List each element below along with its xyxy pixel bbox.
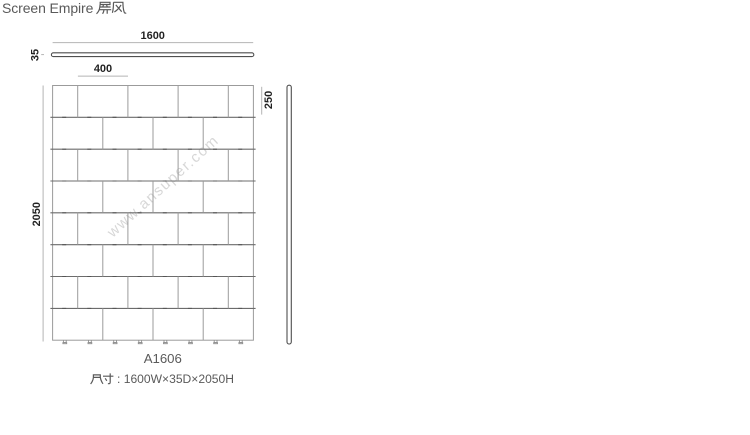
svg-text:Screen Empire: Screen Empire [2,0,94,16]
svg-text:: 1600W×35D×2050H: : 1600W×35D×2050H [117,372,234,386]
svg-text:2050: 2050 [31,202,43,226]
svg-text:1600: 1600 [140,30,164,42]
svg-text:400: 400 [94,63,112,75]
svg-text:250: 250 [263,91,275,109]
svg-text:35: 35 [30,49,42,61]
svg-text:A1606: A1606 [144,351,182,366]
